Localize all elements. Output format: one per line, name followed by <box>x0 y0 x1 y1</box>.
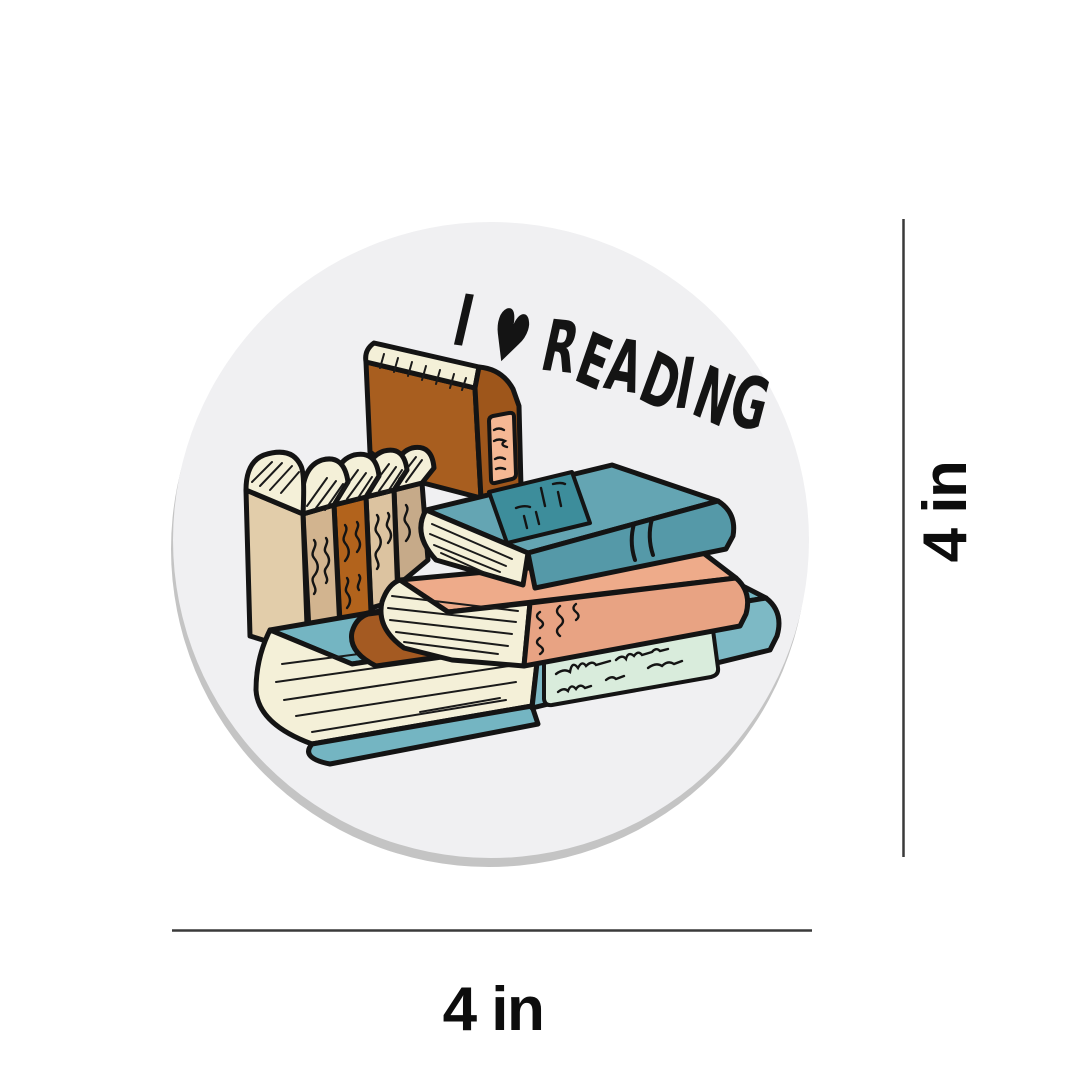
width-dimension: 4 in <box>172 931 812 1045</box>
mockup-svg: I ♥ READING 4 in 4 in <box>0 0 1080 1080</box>
product-image: I ♥ READING 4 in 4 in <box>0 0 1080 1080</box>
brown-spine-label <box>489 413 516 483</box>
height-dimension: 4 in <box>904 219 981 857</box>
width-dimension-label: 4 in <box>443 975 544 1044</box>
height-dimension-label: 4 in <box>911 462 980 563</box>
